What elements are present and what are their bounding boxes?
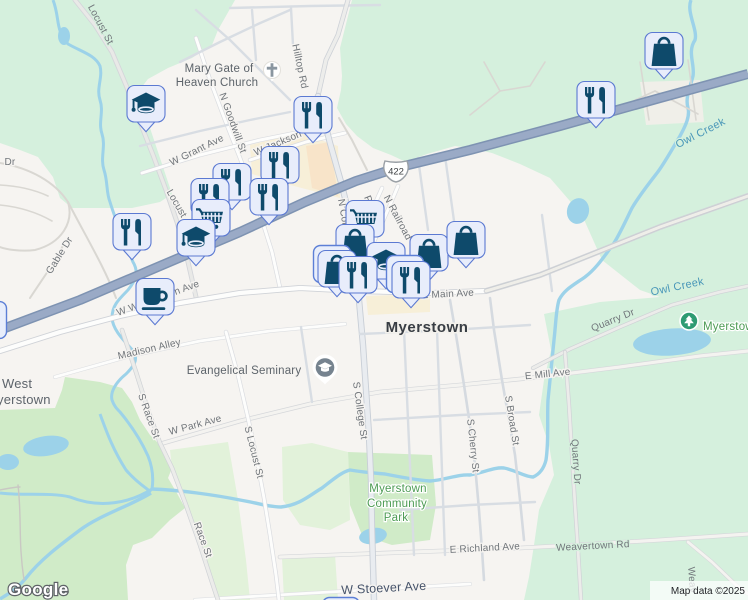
svg-text:Mary Gate of: Mary Gate of	[185, 63, 254, 75]
svg-text:Community: Community	[367, 498, 427, 510]
svg-text:Myerstown: Myerstown	[0, 392, 51, 407]
svg-text:Google: Google	[8, 580, 68, 599]
svg-text:Park: Park	[384, 512, 408, 524]
svg-text:Dr: Dr	[5, 157, 16, 168]
svg-text:Myerstown: Myerstown	[386, 319, 469, 336]
svg-text:Map data ©2025: Map data ©2025	[671, 586, 746, 597]
svg-text:West: West	[2, 376, 32, 391]
svg-text:Myerstow: Myerstow	[703, 321, 748, 333]
svg-text:422: 422	[388, 167, 404, 178]
svg-text:Evangelical Seminary: Evangelical Seminary	[187, 365, 302, 377]
svg-text:Myerstown: Myerstown	[369, 483, 426, 495]
svg-text:Heaven Church: Heaven Church	[176, 77, 259, 89]
